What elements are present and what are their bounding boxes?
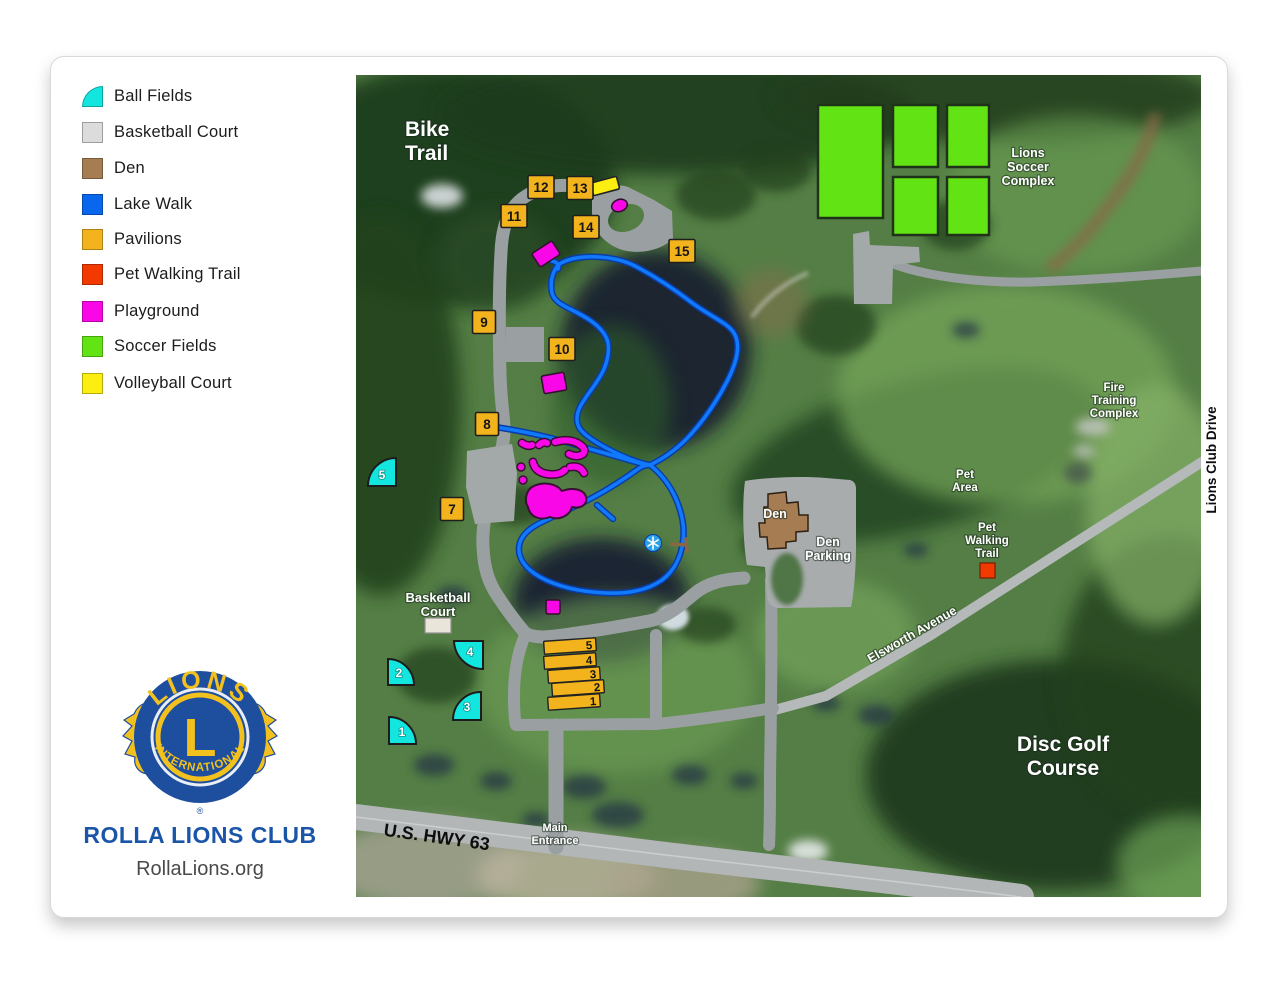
volleyball-court-swatch-icon [82, 373, 103, 394]
marker-number: 15 [674, 244, 690, 259]
house-roof [421, 184, 463, 208]
legend-label: Basketball Court [114, 123, 238, 142]
pavilion-marker: 7 [441, 498, 464, 521]
main-entrance-label: Main [542, 822, 567, 834]
legend-label: Pavilions [114, 230, 182, 249]
bike-trail-label: Bike [405, 118, 449, 141]
legend-label: Pet Walking Trail [114, 265, 241, 284]
basketball-court-swatch-icon [82, 122, 103, 143]
pavilion-marker: 9 [473, 311, 496, 334]
soccer-field [818, 105, 883, 218]
marker-number: 8 [483, 417, 491, 432]
pavilion-buildings: 5 4 3 2 1 [544, 638, 605, 712]
main-entrance-label: Entrance [531, 835, 578, 847]
legend-item: Soccer Fields [82, 334, 217, 358]
fire-training-label: Complex [1090, 408, 1139, 420]
pavilion-number: 3 [589, 669, 596, 681]
soccer-complex-label: Lions [1011, 146, 1044, 160]
pet-walking-trail-marker [980, 563, 995, 578]
ball-field-number: 4 [467, 645, 474, 659]
pavilion-number: 2 [593, 682, 600, 694]
soccer-field [893, 105, 938, 167]
ball-field-number: 2 [396, 666, 403, 680]
ball-field-number: 5 [379, 468, 386, 482]
legend-item: Lake Walk [82, 192, 192, 216]
soccer-field [947, 105, 989, 167]
marker-number: 14 [578, 220, 594, 235]
disc-golf-label: Course [1027, 757, 1099, 780]
pavilion-marker: 14 [573, 216, 599, 239]
pet-walking-trail-label: Walking [965, 535, 1009, 547]
marker-number: 7 [448, 502, 456, 517]
soccer-field [893, 177, 938, 235]
legend-item: Basketball Court [82, 120, 238, 144]
club-name: ROLLA LIONS CLUB [60, 822, 340, 849]
legend-item: Pavilions [82, 227, 182, 251]
den-parking-label: Den [816, 535, 840, 549]
logo-letter: L [184, 708, 217, 768]
pet-area-label: Area [952, 482, 978, 494]
pet-walking-trail-label: Trail [975, 548, 999, 560]
soccer-complex-label: Complex [1002, 174, 1055, 188]
pet-walking-trail-label: Pet [978, 522, 996, 534]
ball-field-number: 3 [464, 700, 471, 714]
lake-walk-swatch-icon [82, 194, 103, 215]
legend-label: Ball Fields [114, 87, 192, 106]
basketball-court [425, 618, 451, 633]
basketball-court-label: Basketball [405, 590, 470, 605]
pavilion-marker: 13 [567, 177, 593, 200]
marker-number: 13 [572, 181, 588, 196]
playground-swatch-icon [82, 301, 103, 322]
marker-number: 12 [533, 180, 548, 195]
soccer-fields-swatch-icon [82, 336, 103, 357]
pavilion-marker: 15 [669, 240, 695, 263]
club-website: RollaLions.org [60, 858, 340, 881]
basketball-court-label: Court [421, 604, 456, 619]
marker-number: 11 [507, 209, 522, 224]
ball-fields-swatch-icon [82, 86, 103, 107]
parking-pocket [506, 327, 544, 362]
legend-label: Lake Walk [114, 195, 192, 214]
legend-label: Playground [114, 302, 199, 321]
pavilion-marker: 8 [476, 413, 499, 436]
west-parking-lot [466, 444, 517, 524]
den-swatch-icon [82, 158, 103, 179]
playground-spot [546, 600, 560, 614]
legend-label: Den [114, 159, 145, 178]
marker-number: 10 [554, 342, 569, 357]
registered-mark: ® [197, 806, 204, 816]
den-label: Den [763, 507, 787, 521]
legend-item: Den [82, 156, 145, 180]
legend-item: Volleyball Court [82, 371, 232, 395]
pavilions-swatch-icon [82, 229, 103, 250]
ball-field-number: 1 [399, 725, 406, 739]
playground-spot [541, 372, 567, 394]
pet-area-label: Pet [956, 469, 974, 481]
legend-label: Soccer Fields [114, 337, 217, 356]
lions-club-drive-label: Lions Club Drive [1204, 399, 1224, 521]
park-map: 5 4 2 3 1 5 4 3 2 1 [356, 75, 1201, 897]
legend-item: Playground [82, 299, 199, 323]
pet-walking-trail-swatch-icon [82, 264, 103, 285]
soccer-field [947, 177, 989, 235]
fountain-icon [645, 535, 662, 552]
soccer-complex-label: Soccer [1007, 160, 1049, 174]
pavilion-marker: 11 [501, 205, 527, 228]
lions-international-logo: L LIONS INTERNATIONAL ® [120, 664, 280, 818]
legend-label: Volleyball Court [114, 374, 232, 393]
disc-golf-label: Disc Golf [1017, 733, 1110, 756]
fire-training-label: Fire [1103, 382, 1124, 394]
park-map-page: Ball Fields Basketball Court Den Lake Wa… [0, 0, 1280, 989]
marker-number: 9 [480, 315, 488, 330]
pavilion-marker: 10 [549, 338, 575, 361]
fire-training-label: Training [1092, 395, 1137, 407]
pavilion-marker: 12 [528, 176, 554, 199]
bike-trail-label: Trail [405, 142, 448, 165]
den-parking-label: Parking [805, 549, 851, 563]
legend-item: Ball Fields [82, 84, 192, 108]
legend-item: Pet Walking Trail [82, 262, 241, 286]
